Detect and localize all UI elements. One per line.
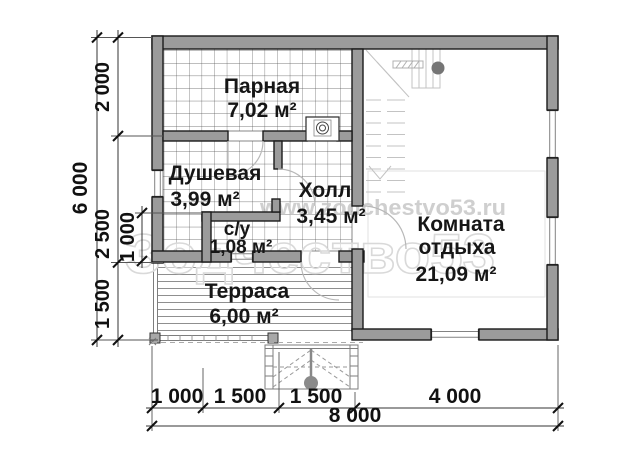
wall-rest-bottom-right bbox=[479, 329, 558, 340]
wall-top bbox=[152, 36, 558, 49]
room-area-terrasa: 6,00 м² bbox=[209, 305, 278, 328]
wall-left-upper bbox=[152, 36, 163, 170]
dim-bottom-4000: 4 000 bbox=[429, 385, 482, 408]
dim-left-2000: 2 000 bbox=[92, 62, 114, 112]
room-label-komnata-1: Комната bbox=[417, 213, 505, 236]
stove bbox=[306, 117, 339, 141]
dim-bottom-total: 8 000 bbox=[329, 404, 382, 427]
wall-divider-upper bbox=[352, 49, 363, 206]
room-area-parnaya: 7,02 м² bbox=[227, 99, 296, 122]
wall-rest-bottom-left bbox=[352, 329, 431, 340]
floor-plan-svg: www.zodchestvo53.ru Зодчество53 bbox=[0, 0, 640, 470]
room-area-holl: 3,45 м² bbox=[296, 205, 365, 228]
dim-bottom-1000: 1 000 bbox=[151, 385, 204, 408]
wall-divider-lower bbox=[352, 249, 363, 331]
chimney-circle bbox=[432, 62, 445, 75]
wall-dush-hall bbox=[274, 141, 282, 169]
wall-su-jamb bbox=[272, 199, 280, 212]
wall-right-2 bbox=[547, 158, 558, 217]
terrace-post bbox=[268, 333, 278, 343]
dim-left-inner-1000: 1 000 bbox=[117, 212, 139, 262]
dim-left-total: 6 000 bbox=[69, 162, 92, 215]
room-area-komnata: 21,09 м² bbox=[416, 263, 497, 286]
room-label-komnata-2: отдыха bbox=[419, 236, 496, 259]
wall-parnaya-2 bbox=[263, 131, 307, 141]
room-label-holl: Холл bbox=[299, 179, 352, 202]
dim-left-1500: 1 500 bbox=[92, 279, 114, 329]
dim-bottom-1500a: 1 500 bbox=[214, 385, 267, 408]
wall-parnaya-1 bbox=[163, 131, 228, 141]
room-area-su: 1,08 м² bbox=[210, 237, 273, 258]
dim-left-2500: 2 500 bbox=[92, 209, 114, 259]
floor-plan-page: www.zodchestvo53.ru Зодчество53 bbox=[0, 0, 640, 470]
room-label-dushevaya: Душевая bbox=[169, 162, 262, 185]
wall-right-3 bbox=[547, 265, 558, 340]
room-area-dushevaya: 3,99 м² bbox=[170, 188, 239, 211]
terrace-post bbox=[150, 333, 160, 343]
wall-right-1 bbox=[547, 36, 558, 110]
room-label-parnaya: Парная bbox=[224, 75, 300, 98]
room-label-terrasa: Терраса bbox=[205, 280, 290, 303]
